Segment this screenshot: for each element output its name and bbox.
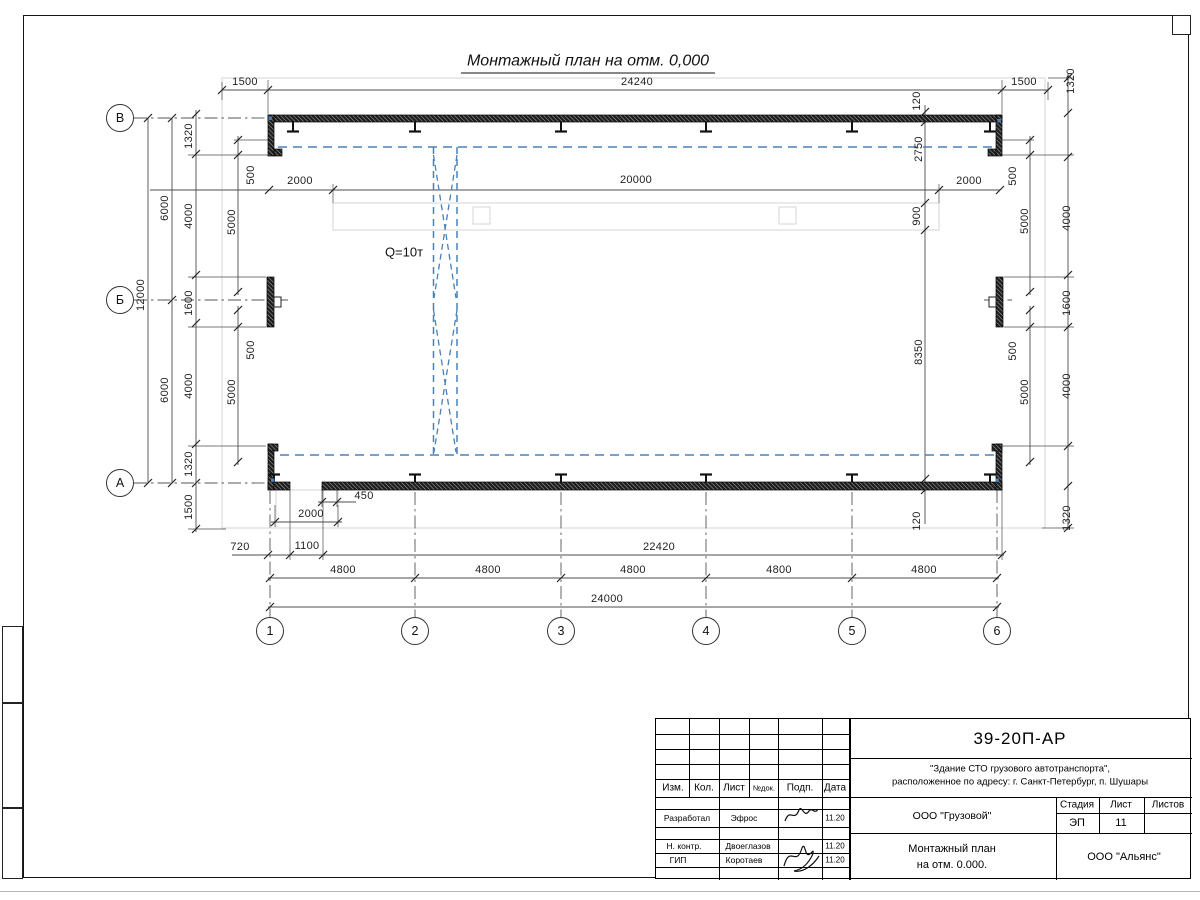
sheet-label: Лист xyxy=(1110,800,1132,811)
title-block: Изм. Кол. Лист №док. Подп. Дата Разработ… xyxy=(655,718,1191,879)
document-code: 39-20П-АР xyxy=(973,729,1066,749)
margin-box-1 xyxy=(2,626,23,703)
name-gip: Коротаев xyxy=(726,855,763,865)
date-gip: 11.20 xyxy=(825,856,844,865)
col-podp: Подп. xyxy=(787,783,814,794)
doc-title-line2: на отм. 0.000. xyxy=(917,859,987,871)
col-izm: Изм. xyxy=(662,783,683,794)
name-ncontrol: Двоеглазов xyxy=(725,841,770,851)
date-ncontrol: 11.20 xyxy=(825,842,844,851)
margin-box-2 xyxy=(2,703,23,808)
stage-value: ЭП xyxy=(1069,817,1085,829)
col-kol: Кол. xyxy=(694,783,714,794)
name-developer: Эфрос xyxy=(731,813,758,823)
company-name: ООО "Альянс" xyxy=(1087,851,1161,863)
doc-title-line1: Монтажный план xyxy=(908,843,996,855)
sheet-value: 11 xyxy=(1115,817,1126,829)
margin-box-3 xyxy=(2,808,23,879)
corner-box xyxy=(1172,15,1191,35)
col-data: Дата xyxy=(824,783,846,794)
drawing-sheet: Монтажный план на отм. 0,000 Q=10т 1500 … xyxy=(0,0,1200,900)
project-name-line2: расположенное по адресу: г. Санкт-Петерб… xyxy=(892,777,1148,788)
sheets-label: Листов xyxy=(1152,800,1185,811)
stage-label: Стадия xyxy=(1060,800,1094,811)
role-developer: Разработал xyxy=(664,813,710,823)
signature-gip xyxy=(780,838,822,876)
role-gip: ГИП xyxy=(670,855,687,865)
project-name-line1: "Здание СТО грузового автотранспорта", xyxy=(930,764,1110,775)
col-ndoc: №док. xyxy=(753,784,775,793)
date-developer: 11.20 xyxy=(825,814,844,823)
role-ncontrol: Н. контр. xyxy=(666,841,701,851)
paper-edge xyxy=(0,891,1200,892)
org-name: ООО "Грузовой" xyxy=(913,810,992,822)
signature-developer xyxy=(782,803,820,827)
col-list: Лист xyxy=(723,783,745,794)
